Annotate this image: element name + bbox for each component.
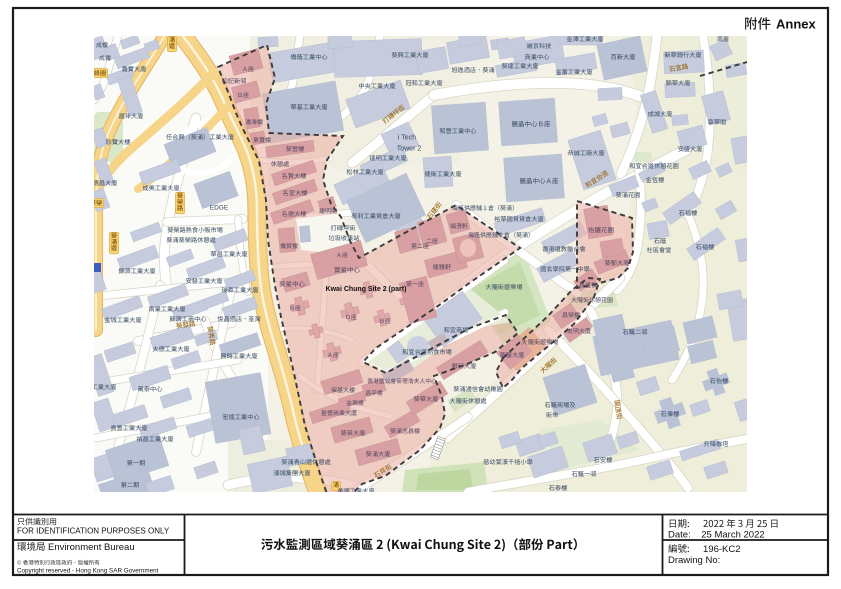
svg-text:Kwai Chung Site 2 (part): Kwai Chung Site 2 (part) [326,286,407,293]
svg-text:Tower 2: Tower 2 [397,145,422,152]
svg-text:i Tech: i Tech [398,134,416,141]
svg-text:196-KC2: 196-KC2 [703,544,741,555]
svg-text:Annex: Annex [776,17,817,32]
svg-text:EDGE: EDGE [210,204,229,211]
svg-text:Copyright reserved - Hong Kong: Copyright reserved - Hong Kong SAR Gover… [17,568,159,575]
svg-text:Date: 25 March 2022: Date: 25 March 2022 [668,530,765,541]
svg-text:FOR IDENTIFICATION PURPOSES ON: FOR IDENTIFICATION PURPOSES ONLY [17,527,170,536]
svg-text:Drawing No:: Drawing No: [668,555,720,566]
svg-text:Environment Bureau: Environment Bureau [48,542,135,553]
